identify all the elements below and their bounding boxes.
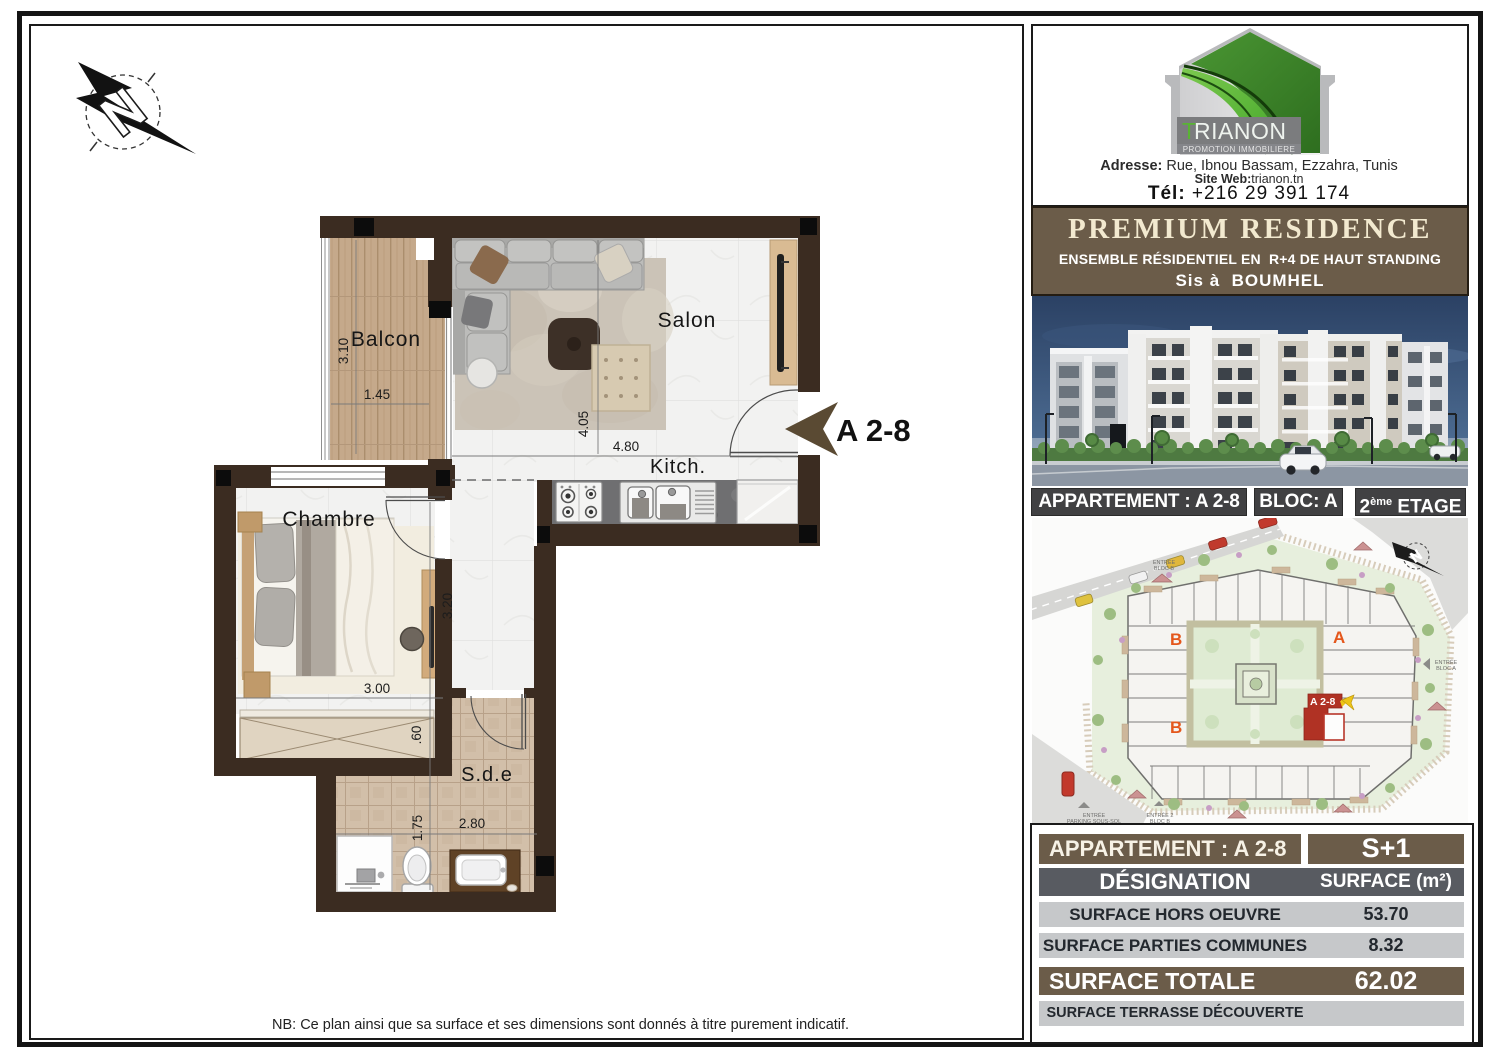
svg-text:4.80: 4.80 <box>613 439 639 454</box>
svg-text:1.45: 1.45 <box>364 387 390 402</box>
svg-text:Kitch.: Kitch. <box>650 456 706 478</box>
svg-text:A 2-8: A 2-8 <box>1310 696 1335 708</box>
svg-text:Tél: +216 29 391 174: Tél: +216 29 391 174 <box>1148 183 1350 204</box>
svg-text:Salon: Salon <box>658 309 717 332</box>
svg-text:3.20: 3.20 <box>440 593 455 619</box>
svg-text:B: B <box>1170 718 1182 737</box>
svg-text:ENTRÉE 2: ENTRÉE 2 <box>1147 812 1174 819</box>
svg-text:B: B <box>1170 630 1182 649</box>
svg-text:1.75: 1.75 <box>410 815 425 841</box>
svg-text:Balcon: Balcon <box>351 328 421 351</box>
svg-text:A 2-8: A 2-8 <box>836 413 911 448</box>
svg-text:RIANON: RIANON <box>1194 118 1286 144</box>
svg-text:ENTRÉE: ENTRÉE <box>1153 559 1176 566</box>
svg-text:BLOC B: BLOC B <box>1154 566 1175 572</box>
svg-text:3.00: 3.00 <box>364 681 390 696</box>
svg-text:PROMOTION IMMOBILIERE: PROMOTION IMMOBILIERE <box>1183 145 1295 154</box>
svg-text:NB: Ce plan ainsi que sa surfa: NB: Ce plan ainsi que sa surface et ses … <box>272 1017 849 1033</box>
svg-text:Chambre: Chambre <box>282 508 375 531</box>
svg-text:S.d.e: S.d.e <box>461 764 513 786</box>
svg-text:ENTRÉE: ENTRÉE <box>1083 812 1106 819</box>
svg-text:4.05: 4.05 <box>576 411 591 437</box>
svg-text:BLOC A: BLOC A <box>1436 666 1456 672</box>
svg-text:2.80: 2.80 <box>459 816 485 831</box>
svg-text:.60: .60 <box>409 726 424 745</box>
svg-text:3.10: 3.10 <box>336 338 351 364</box>
svg-text:A: A <box>1333 628 1345 647</box>
svg-text:ENTRÉE: ENTRÉE <box>1435 659 1458 666</box>
